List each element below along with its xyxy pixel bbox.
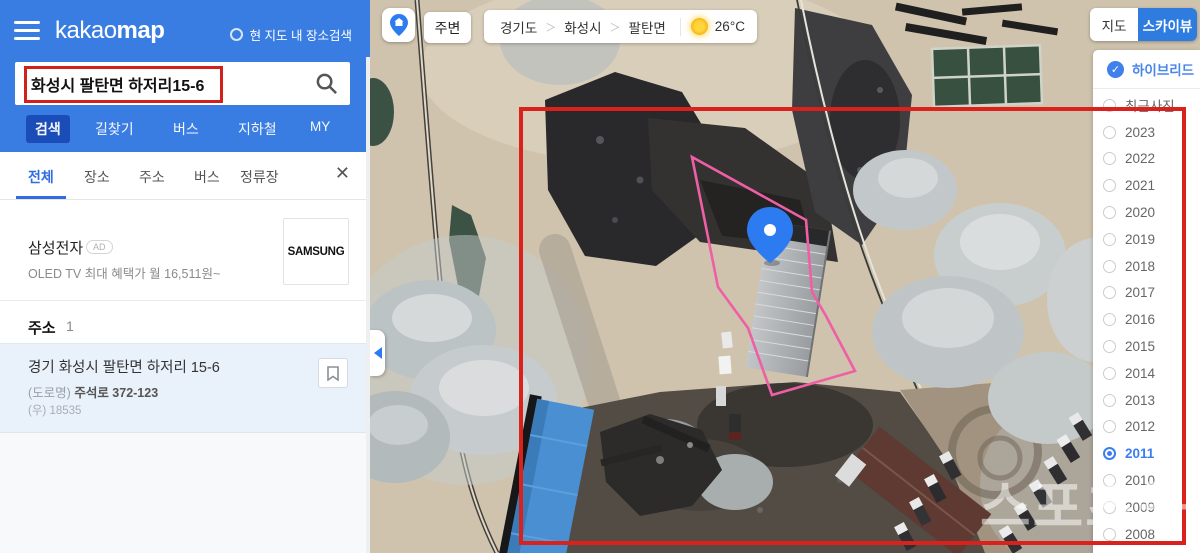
breadcrumb-district[interactable]: 팔탄면 xyxy=(625,17,670,37)
year-option[interactable]: 2009 xyxy=(1093,494,1200,521)
radio-icon xyxy=(1103,313,1116,326)
radio-icon xyxy=(1103,340,1116,353)
year-option[interactable]: 2013 xyxy=(1093,387,1200,414)
view-toggle: 지도 스카이뷰 xyxy=(1090,8,1197,41)
year-option[interactable]: 2014 xyxy=(1093,360,1200,387)
satellite-imagery xyxy=(370,0,1200,553)
map-canvas[interactable]: 주변 경기도 ＞ 화성시 ＞ 팔탄면 26°C 지도 스카이뷰 ✓ 하이브리드 … xyxy=(370,0,1200,553)
sidebar-collapse-button[interactable] xyxy=(370,330,385,376)
radio-icon xyxy=(1103,152,1116,165)
sidebar: kakaomap 현 지도 내 장소검색 검색 길찾기 버스 지하철 MY xyxy=(0,0,370,553)
year-option[interactable]: 2018 xyxy=(1093,253,1200,280)
year-option[interactable]: 2012 xyxy=(1093,414,1200,441)
samsung-logo: SAMSUNG xyxy=(283,218,349,285)
year-option[interactable]: 2020 xyxy=(1093,199,1200,226)
year-option[interactable]: 2023 xyxy=(1093,119,1200,146)
radio-icon xyxy=(1103,367,1116,380)
close-icon[interactable]: ✕ xyxy=(335,164,350,182)
main-tabs: 검색 길찾기 버스 지하철 MY xyxy=(0,113,370,152)
my-location-button[interactable] xyxy=(382,8,415,42)
year-option[interactable]: 2022 xyxy=(1093,146,1200,173)
radio-icon xyxy=(1103,528,1116,541)
radio-icon xyxy=(1103,179,1116,192)
menu-icon[interactable] xyxy=(14,21,40,41)
chevron-right-icon: ＞ xyxy=(606,19,625,35)
tab-directions[interactable]: 길찾기 xyxy=(95,119,134,139)
year-option[interactable]: 2016 xyxy=(1093,306,1200,333)
filter-place[interactable]: 장소 xyxy=(84,167,110,187)
filter-bus[interactable]: 버스 xyxy=(194,167,220,187)
chevron-right-icon: ＞ xyxy=(541,19,560,35)
ad-description: OLED TV 최대 혜택가 월 16,511원~ xyxy=(28,263,220,282)
radio-icon xyxy=(1103,286,1116,299)
year-list: 최근사진 2023 2022 2021 2020 2019 2018 2017 … xyxy=(1093,92,1200,548)
blue-pin-icon xyxy=(389,13,409,37)
result-zipcode: (우) 18535 xyxy=(28,402,81,418)
year-option[interactable]: 2008 xyxy=(1093,521,1200,548)
search-icon[interactable] xyxy=(315,72,338,95)
radio-icon xyxy=(1103,126,1116,139)
skyview-options-panel: ✓ 하이브리드 최근사진 2023 2022 2021 2020 2019 20… xyxy=(1093,50,1200,553)
kakaomap-logo[interactable]: kakaomap xyxy=(55,17,164,45)
filter-station[interactable]: 정류장 xyxy=(240,167,279,187)
search-box xyxy=(15,62,350,105)
year-option[interactable]: 2010 xyxy=(1093,467,1200,494)
radio-icon xyxy=(1103,99,1116,112)
filter-address[interactable]: 주소 xyxy=(139,167,165,187)
check-circle-icon: ✓ xyxy=(1107,61,1124,78)
ad-badge: AD xyxy=(86,240,113,254)
sidebar-scrollbar[interactable] xyxy=(366,57,370,553)
search-in-map-toggle[interactable]: 현 지도 내 장소검색 xyxy=(230,25,352,44)
sidebar-empty-area xyxy=(0,432,370,553)
temperature-label: 26°C xyxy=(715,19,745,34)
address-result-item[interactable]: 경기 화성시 팔탄면 하저리 15-6 (도로명) 주석로 372-123 (우… xyxy=(0,343,370,432)
skyview-button[interactable]: 스카이뷰 xyxy=(1138,8,1197,41)
sun-weather-icon xyxy=(691,18,708,35)
hybrid-label: 하이브리드 xyxy=(1132,59,1194,79)
sidebar-header: kakaomap 현 지도 내 장소검색 검색 길찾기 버스 지하철 MY xyxy=(0,0,370,152)
filter-all[interactable]: 전체 xyxy=(28,167,54,187)
tab-my[interactable]: MY xyxy=(310,119,330,134)
map-view-button[interactable]: 지도 xyxy=(1090,8,1138,41)
kakaomap-app: 주변 경기도 ＞ 화성시 ＞ 팔탄면 26°C 지도 스카이뷰 ✓ 하이브리드 … xyxy=(0,0,1200,553)
breadcrumb: 경기도 ＞ 화성시 ＞ 팔탄면 26°C xyxy=(484,10,757,43)
radio-icon xyxy=(1103,420,1116,433)
bookmark-icon xyxy=(327,366,339,381)
radio-icon xyxy=(1103,233,1116,246)
address-section-header: 주소 1 xyxy=(0,309,370,343)
year-option[interactable]: 2015 xyxy=(1093,333,1200,360)
search-in-map-label: 현 지도 내 장소검색 xyxy=(250,25,352,44)
result-road-address: (도로명) 주석로 372-123 xyxy=(28,382,158,401)
result-title: 경기 화성시 팔탄면 하저리 15-6 xyxy=(28,356,220,377)
tab-subway[interactable]: 지하철 xyxy=(238,119,277,139)
radio-icon xyxy=(1103,501,1116,514)
year-option[interactable]: 2019 xyxy=(1093,226,1200,253)
radio-icon xyxy=(1103,206,1116,219)
section-title: 주소 xyxy=(28,317,56,338)
year-option[interactable]: 최근사진 xyxy=(1093,92,1200,119)
ad-card[interactable]: 삼성전자 AD OLED TV 최대 혜택가 월 16,511원~ SAMSUN… xyxy=(0,200,370,301)
nearby-button[interactable]: 주변 xyxy=(424,12,471,43)
divider xyxy=(680,18,681,36)
active-tab-underline xyxy=(16,196,66,199)
hybrid-checkbox[interactable]: ✓ 하이브리드 xyxy=(1093,50,1200,89)
tab-bus[interactable]: 버스 xyxy=(173,119,199,139)
radio-icon xyxy=(230,28,243,41)
section-count: 1 xyxy=(66,318,74,334)
ad-title: 삼성전자 xyxy=(28,237,83,258)
year-option[interactable]: 2021 xyxy=(1093,172,1200,199)
bookmark-button[interactable] xyxy=(318,358,348,388)
radio-icon xyxy=(1103,260,1116,273)
year-option[interactable]: 2017 xyxy=(1093,280,1200,307)
chevron-left-icon xyxy=(374,347,382,359)
tab-search[interactable]: 검색 xyxy=(26,115,70,143)
radio-icon xyxy=(1103,394,1116,407)
result-filter-bar: 전체 장소 주소 버스 정류장 ✕ xyxy=(0,152,370,200)
breadcrumb-city[interactable]: 화성시 xyxy=(560,17,605,37)
breadcrumb-province[interactable]: 경기도 xyxy=(496,17,541,37)
radio-selected-icon xyxy=(1103,447,1116,460)
radio-icon xyxy=(1103,474,1116,487)
year-option-selected[interactable]: 2011 xyxy=(1093,440,1200,467)
search-input[interactable] xyxy=(15,62,315,105)
